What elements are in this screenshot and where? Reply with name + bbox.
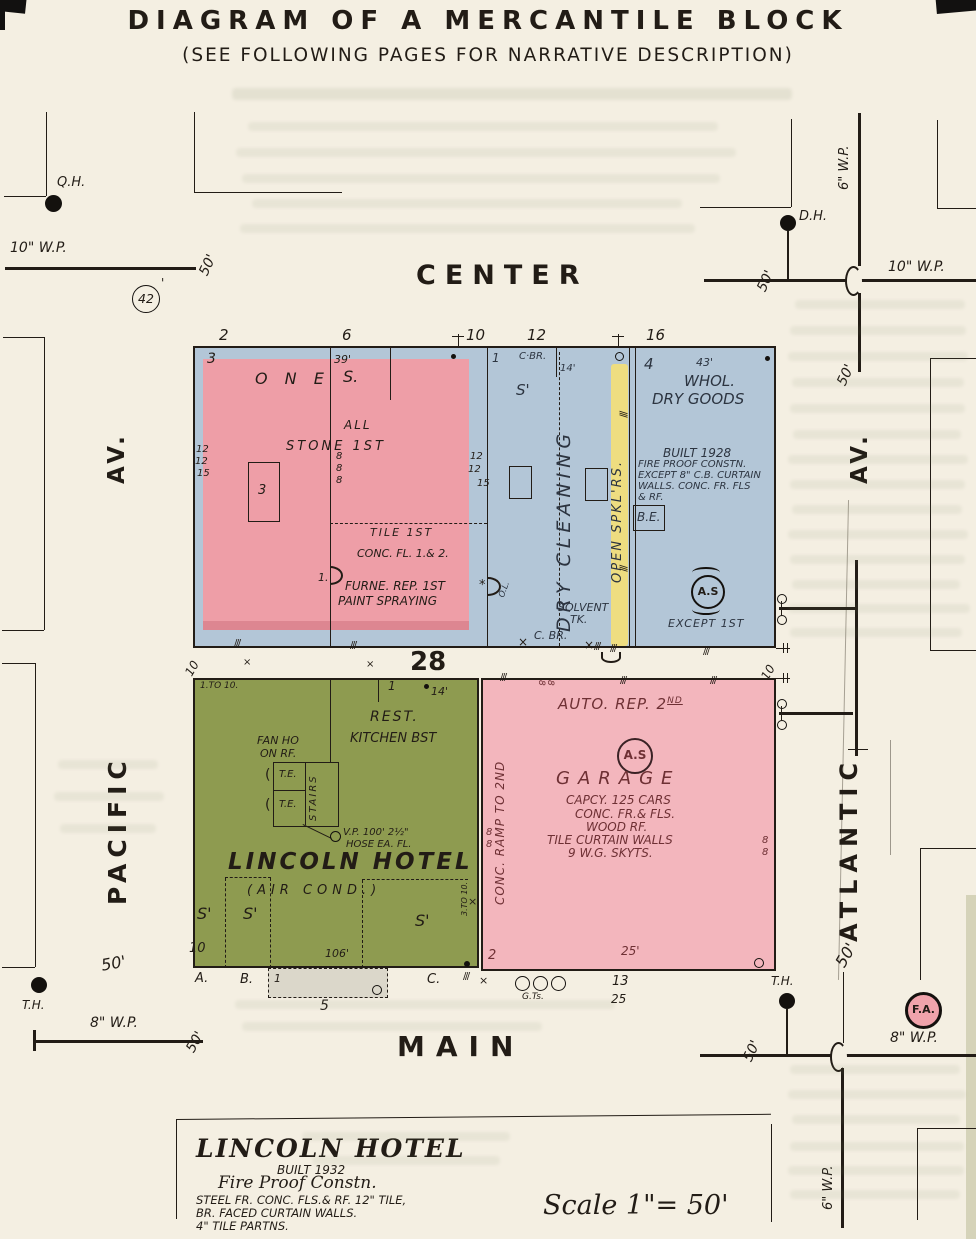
adjacent-block-outline — [194, 192, 342, 193]
auto-sprinkler-label: A.S — [698, 585, 719, 598]
skylight-number: 3 — [258, 484, 266, 497]
street-number-main: 5 — [320, 999, 329, 1013]
distance-50-nw: 50' — [197, 252, 219, 278]
wall-thickness: 12 — [470, 452, 483, 462]
party-wall-stub — [390, 346, 391, 400]
bleed-through-text — [790, 1065, 960, 1074]
roof-note: ON RF. — [260, 748, 296, 759]
street-number: 6 — [342, 328, 352, 343]
wall-thickness: 8 — [536, 680, 545, 686]
distance-50-ne: 50' — [755, 268, 777, 294]
hotel-wall-stub — [378, 678, 379, 702]
party-wall — [487, 346, 488, 648]
x-mark: × — [584, 639, 594, 651]
elevator-hook: ( — [265, 798, 270, 812]
legend-fireproof: Fire Proof Constn. — [218, 1175, 377, 1192]
street-pacific: PACIFIC — [103, 755, 132, 905]
fire-escape-stem — [781, 609, 782, 616]
lot-number: 10 — [189, 942, 206, 955]
scan-artifact — [935, 0, 976, 14]
sprinkler-symbol-wing — [692, 604, 720, 615]
street-number-main: 25 — [611, 993, 626, 1005]
alley-number: 28 — [410, 649, 446, 675]
construction-note: & RF. — [638, 493, 664, 503]
adjacent-block-outline — [937, 120, 938, 208]
bleed-through-text — [792, 580, 960, 589]
bleed-through-text — [788, 352, 968, 361]
pipe-label-nw: 10" W.P. — [10, 241, 67, 255]
bleed-through-text — [790, 1142, 964, 1151]
pipe-crossing-loop — [845, 266, 862, 296]
water-pipe-ne-v — [858, 293, 861, 372]
wall-thickness: 15 — [197, 469, 210, 479]
bleed-through-text — [790, 628, 962, 637]
hydrant-label-qh: Q.H. — [57, 176, 85, 189]
riser-arc — [601, 652, 621, 663]
corner-dot — [464, 961, 470, 967]
parapet-hatch: /// — [463, 971, 469, 982]
adjacent-block-outline — [930, 650, 976, 651]
tick — [787, 673, 788, 683]
party-wall — [330, 346, 331, 648]
hotel-wall — [330, 678, 331, 763]
occupancy-name: DRY GOODS — [652, 392, 744, 407]
fire-escape-circle — [777, 615, 787, 625]
hydrant-dot-dh — [780, 215, 796, 231]
adjacent-block-outline — [700, 207, 791, 208]
wall-thickness: 8 — [486, 828, 492, 838]
occupancy-point: 1 — [388, 680, 396, 692]
bleed-through-text — [792, 1115, 960, 1124]
street-atlantic-tick — [848, 749, 868, 750]
adjacent-block-outline — [35, 663, 36, 967]
water-pipe-sw-cap — [33, 1030, 36, 1051]
bleed-through-text — [252, 199, 682, 208]
stories-label: S. — [343, 369, 358, 385]
scan-artifact — [966, 895, 976, 1239]
parapet-hatch: /// — [703, 646, 709, 657]
adjacent-block-outline — [2, 663, 35, 664]
adjacent-block-outline — [44, 337, 45, 630]
stories-label: S' — [197, 906, 212, 922]
width-label: 39' — [334, 354, 351, 365]
occupancy-point: 1 — [492, 352, 500, 364]
bleed-through-text — [235, 1000, 615, 1009]
hydrant-dot-thw — [31, 977, 47, 993]
bleed-through-text — [795, 300, 965, 309]
page-title: DIAGRAM OF A MERCANTILE BLOCK — [127, 8, 848, 34]
occupancy-name: GARAGE — [556, 770, 680, 788]
stories-label: S' — [415, 913, 430, 929]
bleed-through-text — [788, 530, 968, 539]
bleed-through-text — [248, 122, 718, 131]
distance-line — [843, 972, 844, 1043]
stories-label: S' — [516, 383, 530, 398]
water-pipe-ne-v — [858, 113, 861, 266]
asterisk-mark: * — [479, 579, 486, 592]
stories-range: 1.TO 10. — [200, 682, 238, 691]
hydrant-stub-dh — [787, 231, 789, 280]
street-number: 12 — [527, 328, 546, 343]
wall-thickness: 8 — [545, 680, 554, 686]
parapet-hatch: /// — [500, 672, 506, 683]
stories-label: S' — [243, 906, 258, 922]
fire-escape-circle — [777, 720, 787, 730]
wall-thickness: 8 — [762, 836, 768, 846]
entrance-letter: C. — [427, 973, 440, 986]
lot-number: 3 — [207, 352, 216, 366]
x-mark: × — [518, 636, 528, 648]
adjacent-block-outline — [3, 337, 44, 338]
gas-tank-circle — [533, 976, 548, 991]
sanborn-map-page: DIAGRAM OF A MERCANTILE BLOCK (SEE FOLLO… — [0, 0, 976, 1239]
adjacent-block-outline — [791, 119, 792, 207]
hydrant-label-the: T.H. — [771, 975, 794, 987]
partition-dashed — [225, 877, 271, 878]
legend-line: BR. FACED CURTAIN WALLS. — [196, 1208, 357, 1220]
street-main: MAIN — [397, 1030, 524, 1063]
width-label: 43' — [696, 357, 713, 368]
firewall-hatch: /// — [617, 565, 628, 571]
wall-thickness: 8 — [336, 464, 342, 474]
pipe-label-ne: 10" W.P. — [888, 260, 945, 274]
construction-note: BUILT 1928 — [663, 447, 731, 459]
hydrant-label-dh: D.H. — [799, 210, 827, 223]
adjacent-block-outline — [917, 1128, 976, 1129]
pipe-label-se-v: 6" W.P. — [822, 1166, 835, 1211]
stone-store-fill-dark — [203, 621, 469, 630]
bleed-through-text — [790, 1190, 960, 1199]
wall-thickness: 8 — [336, 452, 342, 462]
standpipe-note: V.P. 100' 2½" — [343, 828, 409, 838]
wall-thickness: 12 — [196, 445, 209, 455]
adjacent-block-outline — [2, 630, 44, 631]
width-label: 106' — [325, 948, 349, 959]
x-mark: × — [243, 658, 251, 668]
construction-note: TILE CURTAIN WALLS — [547, 834, 673, 846]
block-number: 42 — [138, 291, 154, 306]
wall-thickness: 8 — [336, 476, 342, 486]
street-pacific-av: AV. — [104, 432, 130, 484]
elevator-hook: ( — [265, 768, 270, 782]
pipe-label-sw: 8" W.P. — [90, 1016, 138, 1030]
lot-number: 2 — [488, 949, 496, 962]
hotel-name: LINCOLN HOTEL — [228, 851, 473, 874]
occupancy-name: REST. — [370, 710, 419, 724]
entrance-letter: B. — [240, 973, 253, 986]
fire-wall — [629, 346, 630, 648]
occupancy-note: PAINT SPRAYING — [338, 595, 437, 607]
occupancy-note: FURNE. REP. 1ST — [345, 580, 445, 592]
skylight-note: 9 W.G. SKYTS. — [568, 847, 653, 859]
adjacent-block-outline — [917, 1128, 918, 1220]
construction-note: FIRE PROOF CONSTN. — [638, 460, 746, 470]
auto-rep-sup: ND — [667, 696, 683, 706]
fire-escape-bar — [779, 712, 853, 715]
width-label: 25' — [621, 945, 640, 957]
pipe-label-se: 8" W.P. — [890, 1031, 938, 1045]
street-atlantic-av: AV. — [847, 432, 873, 484]
bleed-through-text — [793, 430, 961, 439]
bleed-through-text — [788, 1166, 964, 1175]
construction-note: EXCEPT 8" C.B. CURTAIN — [638, 471, 761, 481]
pipe-label-ne-v: 6" W.P. — [838, 146, 851, 191]
entrance-letter: A. — [195, 972, 208, 985]
stairs-label: STAIRS — [309, 774, 319, 821]
parapet-hatch: /// — [620, 675, 626, 686]
partition-dashed — [225, 878, 226, 968]
gas-tank-circle — [515, 976, 530, 991]
marquee-post — [372, 985, 382, 995]
scan-artifact — [0, 6, 5, 30]
tick — [783, 643, 784, 653]
tank-note: TK. — [570, 614, 587, 625]
skylight-box — [509, 466, 532, 499]
bleed-through-text — [790, 404, 965, 413]
distance-50-e: 50' — [833, 941, 859, 970]
bleed-through-text — [790, 480, 965, 489]
partition-dashed — [362, 879, 468, 880]
alley-width: 10 — [183, 659, 201, 678]
bleed-through-text — [240, 224, 695, 233]
x-mark: × — [479, 975, 488, 986]
water-pipe-ne — [704, 279, 976, 282]
width-label: 14' — [431, 686, 448, 697]
adjacent-block-outline — [2, 967, 35, 968]
corner-dot — [765, 356, 770, 361]
bleed-through-text — [790, 555, 965, 564]
x-mark: × — [366, 660, 374, 670]
hydrant-dot-the — [779, 993, 795, 1009]
tick-mark: ' — [161, 277, 164, 289]
fire-alarm-circle: F.A. — [905, 992, 942, 1029]
auto-rep-label: AUTO. REP. 2 — [558, 695, 667, 713]
page-subtitle: (SEE FOLLOWING PAGES FOR NARRATIVE DESCR… — [182, 47, 794, 66]
partition-dashed — [362, 880, 363, 968]
construction-note: ALL — [344, 419, 372, 431]
vent-circle — [615, 352, 624, 361]
occupancy-point: 1. — [318, 572, 329, 583]
chimney-note: C·BR. — [519, 352, 546, 362]
stories-label: O N E — [255, 371, 330, 387]
construction-note: CONC. FR.& FLS. — [575, 808, 675, 820]
tick — [787, 643, 788, 653]
adjacent-block-outline — [920, 848, 921, 980]
basement-entrance-label: B.E. — [637, 511, 660, 523]
firewall-hatch: /// — [617, 411, 628, 417]
survey-tick — [452, 336, 464, 337]
fire-escape-stem — [781, 714, 782, 721]
wall-thickness: 8 — [762, 848, 768, 858]
map-scale: Scale 1"= 50' — [543, 1192, 729, 1219]
adjacent-block-outline — [194, 112, 195, 192]
chimney-note: C. BR. — [534, 630, 567, 641]
distance-50-sw: 50' — [184, 1029, 207, 1055]
wall-thickness: 12 — [195, 457, 208, 467]
legend-line: STEEL FR. CONC. FLS.& RF. 12" TILE, — [196, 1195, 406, 1207]
wall-thickness: 15 — [477, 479, 490, 489]
occupancy-name: AUTO. REP. 2ND — [558, 697, 683, 712]
fire-escape-bar — [779, 607, 856, 610]
wall-thickness: 12 — [468, 465, 481, 475]
construction-note: WALLS. CONC. FR. FLS — [638, 482, 750, 492]
gas-tank-label: G.Ts. — [522, 993, 544, 1002]
water-pipe-se-v — [841, 1068, 844, 1228]
bleed-through-text — [792, 378, 964, 387]
roof-note: FAN HO — [257, 735, 299, 746]
elevator-label: T.E. — [279, 800, 297, 810]
frontage-line-east — [855, 560, 858, 756]
x-mark: × — [468, 896, 477, 907]
parapet-hatch: /// — [710, 675, 716, 686]
adjacent-block-outline — [920, 848, 976, 849]
occupancy-name: KITCHEN BST — [350, 732, 436, 745]
chimney-tick — [556, 346, 557, 377]
legend-line: 4" TILE PARTNS. — [196, 1221, 289, 1233]
gas-tank-circle — [551, 976, 566, 991]
sprinkler-exception: EXCEPT 1ST — [668, 618, 744, 629]
street-center: CENTER — [416, 260, 589, 291]
marquee-canopy: 1 — [268, 968, 388, 998]
hydrant-dot-qh — [45, 195, 62, 212]
tank-note: SOLVENT — [558, 602, 608, 613]
distance-50-se: 50' — [741, 1038, 763, 1064]
tile-partition-dashed — [330, 523, 487, 524]
bleed-through-text — [792, 505, 962, 514]
lot-number: 4 — [644, 357, 654, 372]
fire-alarm-label: F.A. — [912, 1003, 935, 1016]
block-number-circle: 42 — [132, 285, 160, 313]
fire-escape-stem — [781, 601, 782, 608]
wall-thickness: 8 — [486, 840, 492, 850]
tick — [783, 673, 784, 683]
skylight-box: 3 — [248, 462, 280, 522]
bleed-through-text — [788, 455, 968, 464]
floor-note: CONC. FL. 1.& 2. — [357, 548, 449, 559]
distance-50-w: 50' — [100, 954, 127, 974]
legend-box-right — [771, 1124, 772, 1222]
water-pipe-sw — [33, 1040, 203, 1043]
distance-50-ne2: 50' — [835, 362, 857, 388]
floor-note: TILE 1ST — [370, 527, 433, 538]
street-number: 16 — [646, 328, 665, 343]
corner-circle — [754, 958, 764, 968]
partition-dashed — [270, 878, 271, 968]
marquee-number: 1 — [274, 973, 281, 984]
bleed-through-text — [232, 88, 792, 100]
legend-box-left — [176, 1119, 177, 1219]
hydrant-stub-the — [786, 1009, 788, 1055]
street-number: 2 — [219, 328, 229, 343]
capacity-note: CAPCY. 125 CARS — [566, 794, 671, 806]
auto-sprinkler-label: A.S — [624, 748, 647, 762]
survey-tick — [612, 336, 624, 337]
corner-dot — [424, 684, 429, 689]
fire-escape-stem — [781, 706, 782, 713]
bleed-through-text — [236, 148, 736, 157]
parapet-hatch: /// — [594, 641, 600, 652]
hydrant-label-thw: T.H. — [22, 999, 45, 1011]
standpipe-circle — [330, 831, 341, 842]
stair-wall — [273, 790, 305, 791]
street-number: 10 — [466, 328, 485, 343]
bleed-through-text — [242, 174, 720, 183]
water-pipe-nw — [5, 267, 196, 270]
adjacent-block-outline — [4, 196, 46, 197]
construction-note: WOOD RF. — [586, 821, 647, 833]
bleed-through-text — [788, 1090, 966, 1099]
street-number-main: 13 — [612, 975, 629, 988]
adjacent-block-outline — [46, 112, 47, 196]
scan-crease — [890, 740, 891, 855]
occupancy-name: WHOL. — [684, 374, 735, 389]
width-label: 14' — [560, 364, 575, 374]
adjacent-block-outline — [930, 358, 976, 359]
basement-entrance-box: B.E. — [633, 505, 665, 531]
ramp-note: CONC. RAMP TO 2ND — [494, 761, 506, 905]
parapet-hatch: /// — [350, 640, 356, 651]
street-atlantic: ATLANTIC — [835, 756, 863, 942]
pipe-crossing-loop — [830, 1042, 847, 1072]
stair-wall — [305, 762, 306, 825]
bleed-through-text — [790, 326, 966, 335]
skylight-box — [585, 468, 608, 501]
adjacent-block-outline — [930, 358, 931, 650]
adjacent-block-outline — [937, 208, 976, 209]
corner-dot — [451, 354, 456, 359]
legend-box-top — [176, 1114, 771, 1120]
elevator-label: T.E. — [279, 770, 297, 780]
fire-wall — [635, 346, 636, 648]
legend-hotel-name: LINCOLN HOTEL — [196, 1136, 466, 1161]
parapet-hatch: /// — [234, 638, 240, 649]
